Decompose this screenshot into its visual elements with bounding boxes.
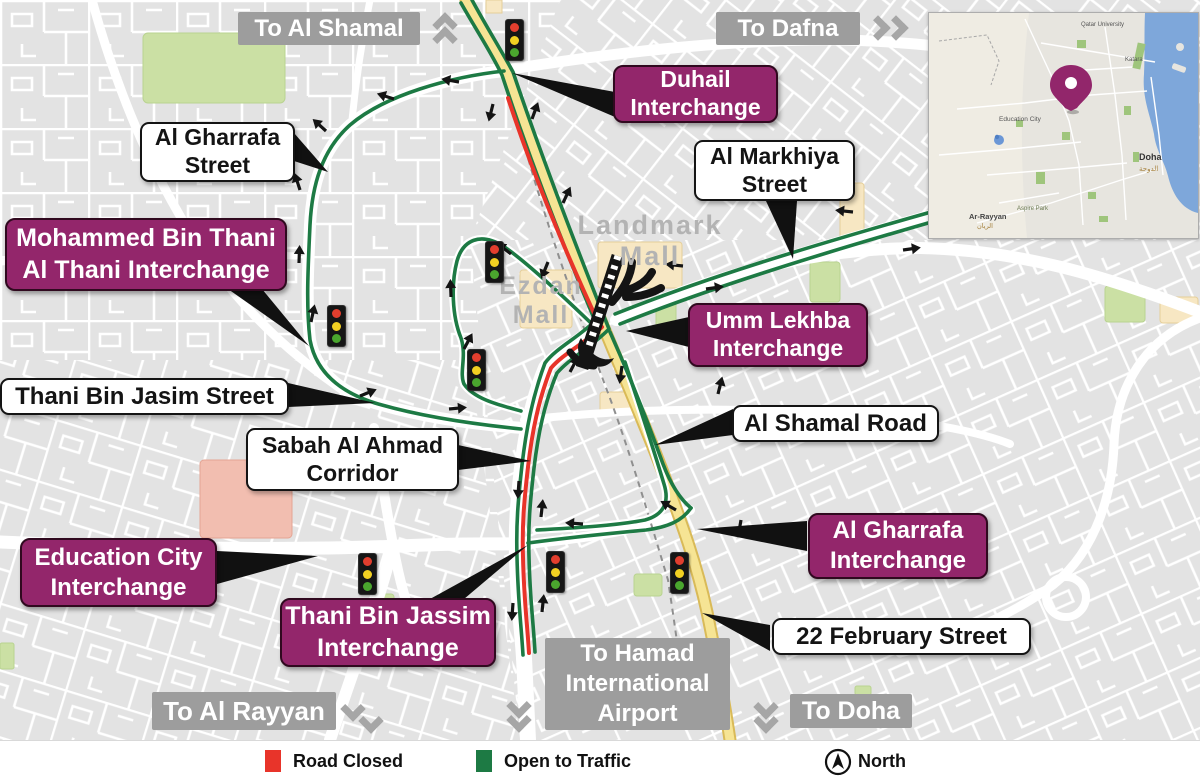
badge-al-gharrafa-street: Al Gharrafa Street xyxy=(140,122,295,182)
direction-to-al-rayyan: To Al Rayyan xyxy=(152,692,336,730)
direction-to-al-shamal: To Al Shamal xyxy=(238,12,420,45)
traffic-light-icon xyxy=(546,551,565,593)
badge-mohammed-bin-thani-interchange: Mohammed Bin Thani Al Thani Interchange xyxy=(5,218,287,291)
north-compass-icon xyxy=(824,748,852,776)
open-to-traffic-swatch xyxy=(476,750,492,772)
traffic-light-icon xyxy=(467,349,486,391)
badge-duhail-interchange: Duhail Interchange xyxy=(613,65,778,123)
traffic-light-icon xyxy=(485,241,504,283)
direction-to-hamad-airport: To Hamad International Airport xyxy=(545,638,730,730)
landmark-mall-label: Landmark Mall xyxy=(570,210,730,272)
inset-label-doha-ar: الدوحة xyxy=(1139,166,1158,173)
north-label: North xyxy=(858,751,906,772)
legend-bar: Road Closed Open to Traffic North xyxy=(0,740,1200,783)
traffic-light-icon xyxy=(670,552,689,594)
badge-al-shamal-road: Al Shamal Road xyxy=(732,405,939,442)
traffic-light-icon xyxy=(358,553,377,595)
badge-thani-bin-jassim-interchange: Thani Bin Jassim Interchange xyxy=(280,598,496,667)
traffic-light-icon xyxy=(327,305,346,347)
direction-to-dafna: To Dafna xyxy=(716,12,860,45)
badge-22-february-street: 22 February Street xyxy=(772,618,1031,655)
inset-label-ar-rayyan-ar: الريان xyxy=(977,223,993,230)
inset-overview-map: Doha الدوحة Ar-Rayyan الريان Education C… xyxy=(928,12,1199,239)
badge-umm-lekhba-interchange: Umm Lekhba Interchange xyxy=(688,303,868,367)
inset-label-education-city: Education City xyxy=(999,116,1042,123)
road-closed-label: Road Closed xyxy=(293,751,403,772)
badge-sabah-al-ahmad-corridor: Sabah Al Ahmad Corridor xyxy=(246,428,459,491)
traffic-light-icon xyxy=(505,19,524,61)
badge-education-city-interchange: Education City Interchange xyxy=(20,538,217,607)
badge-thani-bin-jasim-street: Thani Bin Jasim Street xyxy=(0,378,289,415)
badge-al-markhiya-street: Al Markhiya Street xyxy=(694,140,855,201)
inset-label-qatar-university: Qatar University xyxy=(1081,22,1124,28)
traffic-map: Landmark Mall Ezdan Mall To Al Shamal To… xyxy=(0,0,1200,783)
road-closed-swatch xyxy=(265,750,281,772)
inset-label-ar-rayyan: Ar-Rayyan xyxy=(969,212,1007,221)
direction-to-doha: To Doha xyxy=(790,694,912,728)
inset-map-canvas: Doha الدوحة Ar-Rayyan الريان Education C… xyxy=(929,13,1198,238)
inset-label-aspire-park: Aspire Park xyxy=(1017,206,1049,212)
open-to-traffic-label: Open to Traffic xyxy=(504,751,631,772)
badge-al-gharrafa-interchange: Al Gharrafa Interchange xyxy=(808,513,988,579)
inset-label-katara: Katara xyxy=(1125,57,1143,63)
inset-label-doha: Doha xyxy=(1139,152,1162,162)
